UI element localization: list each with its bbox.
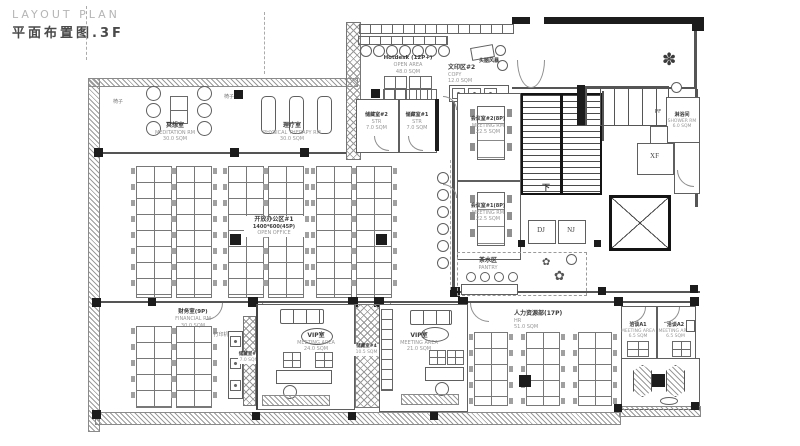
room-storage4 [355, 304, 380, 408]
column [148, 298, 156, 306]
flower-icon: ✿ [554, 270, 565, 283]
room-area: 30.0 SQM [262, 136, 322, 143]
door-arc [206, 303, 223, 320]
wardrobe [381, 309, 393, 391]
elevator [609, 195, 671, 251]
meeting-table [477, 192, 505, 246]
column [230, 234, 241, 245]
desk-row [136, 166, 172, 298]
chair-label: 椅子 [108, 99, 128, 106]
table-group [672, 341, 691, 357]
room-name: 人力资源部(17P) [514, 310, 578, 318]
desk-row [136, 326, 172, 408]
door-arc [470, 303, 489, 322]
long-table [276, 370, 332, 384]
column [252, 412, 260, 420]
stool-seat [399, 45, 411, 57]
desk-row [356, 166, 392, 298]
column [300, 148, 309, 157]
page-title-en: LAYOUT PLAN [12, 8, 120, 21]
stool-seat [438, 45, 450, 57]
chair-seat [437, 206, 449, 218]
column [614, 404, 622, 412]
bench [401, 394, 459, 405]
wall-top-left [88, 78, 358, 87]
wall-bottom [95, 412, 621, 425]
room-area: 30.0 SQM [152, 136, 198, 143]
chair-seat [437, 223, 449, 235]
room-service [674, 142, 700, 194]
wall-segment [602, 91, 604, 141]
meeting-table [477, 106, 505, 160]
stool-seat [425, 45, 437, 57]
therapy-bed [261, 96, 276, 134]
stool-seat [386, 45, 398, 57]
wall-segment [435, 99, 439, 151]
printer-icon [230, 336, 241, 347]
shaft-dj [528, 220, 556, 244]
stool-seat [480, 272, 490, 282]
desk-row [176, 166, 212, 298]
chair-seat [437, 240, 449, 252]
room-storage3 [243, 316, 256, 406]
bench [262, 395, 330, 406]
wall-top-right [512, 17, 530, 24]
room-xf [637, 143, 674, 175]
wall-top-right [544, 17, 696, 24]
desk-row [526, 332, 560, 406]
rug-oval [301, 328, 333, 345]
sofa [280, 309, 324, 324]
lounge-chair [447, 350, 464, 365]
column [690, 285, 698, 293]
printer-icon [230, 380, 241, 391]
desk-row [268, 166, 304, 298]
bar-counter [358, 36, 448, 45]
plant-pot-icon [566, 254, 577, 265]
column [230, 148, 239, 157]
stool-seat [494, 272, 504, 282]
flower-icon: ✿ [542, 258, 550, 268]
chair-seat [437, 172, 449, 184]
stool-seat [360, 45, 372, 57]
rug-oval [421, 327, 449, 342]
column [376, 234, 387, 245]
table-group [627, 341, 649, 357]
double-door-left [517, 60, 531, 88]
closet [650, 126, 668, 144]
column [430, 412, 438, 420]
chair-seat [497, 60, 508, 71]
desk-row [228, 166, 264, 298]
pouf-seat [197, 86, 212, 101]
printer-icon [230, 358, 241, 369]
wall-right [694, 31, 697, 89]
room-area: 51.0 SQM [514, 324, 578, 331]
long-table [425, 367, 464, 381]
stool-seat [508, 272, 518, 282]
column [598, 287, 606, 295]
desk-row [176, 326, 212, 408]
pouf-seat [146, 86, 161, 101]
wall-bottom-right [619, 406, 701, 417]
axis-dash-line [264, 12, 265, 74]
sofa [410, 310, 452, 325]
room-label-hr: 人力资源部(17P) HR 51.0 SQM [514, 310, 578, 331]
pantry-counter [461, 284, 518, 295]
desk-row [316, 166, 352, 298]
column [92, 298, 101, 307]
column [371, 89, 380, 98]
room-label-hotdesk: Hotdesk (12P+) OPEN AREA 48.0 SQM [380, 55, 436, 75]
column [234, 90, 243, 99]
lounge-chair [283, 352, 301, 368]
plant-icon: ✽ [662, 52, 676, 69]
chair-seat [437, 189, 449, 201]
plant-pot-icon [671, 82, 682, 93]
column [692, 17, 704, 31]
recliner-chair [633, 365, 652, 397]
stool-seat [373, 45, 385, 57]
desk-row [578, 332, 612, 406]
column [519, 375, 531, 387]
room-sub: OPEN AREA [380, 62, 436, 69]
wall-top-window [359, 24, 514, 34]
therapy-bed [289, 96, 304, 134]
lounge-chair [429, 350, 446, 365]
chair-seat [495, 45, 506, 56]
column [690, 297, 699, 306]
room-area: 48.0 SQM [380, 69, 436, 76]
pouf-seat [146, 121, 161, 136]
column [614, 297, 623, 306]
pouf-seat [197, 103, 212, 118]
stool-seat [412, 45, 424, 57]
wall-left [88, 78, 100, 432]
column [594, 240, 601, 247]
axis-dash-line [86, 6, 87, 60]
therapy-bed [317, 96, 332, 134]
toilet-stalls [585, 86, 669, 126]
cabinet [686, 320, 695, 332]
table [170, 96, 188, 124]
column [652, 374, 665, 387]
column [691, 402, 699, 410]
stool-seat [466, 272, 476, 282]
column [518, 240, 525, 247]
shaft-nj [558, 220, 586, 244]
recliner-chair [666, 365, 685, 397]
column [348, 412, 356, 420]
pouf-seat [197, 121, 212, 136]
zone-dash-line [450, 160, 451, 290]
room-label-copy: 文印区#2 COPY 12.0 SQM [448, 64, 484, 85]
column [94, 148, 103, 157]
room-sub: COPY [448, 72, 484, 79]
room-name: 文印区#2 [448, 64, 484, 72]
room-shower [666, 97, 700, 143]
floor-plan: LAYOUT PLAN 平面布置图.3F ✽ 冥想室 MEDITATION RM… [0, 0, 800, 446]
chair-seat [437, 257, 449, 269]
page-title-zh: 平面布置图.3F [12, 22, 124, 41]
lounge-chair [315, 352, 333, 368]
column [92, 410, 101, 419]
brainstorm-desk [470, 44, 495, 61]
wall-segment [577, 85, 585, 125]
room-sub: HR [514, 318, 578, 325]
double-door-right [531, 60, 545, 88]
pouf-seat [146, 103, 161, 118]
room-area: 12.0 SQM [448, 78, 484, 85]
desk-row [474, 332, 508, 406]
side-table [660, 397, 678, 405]
